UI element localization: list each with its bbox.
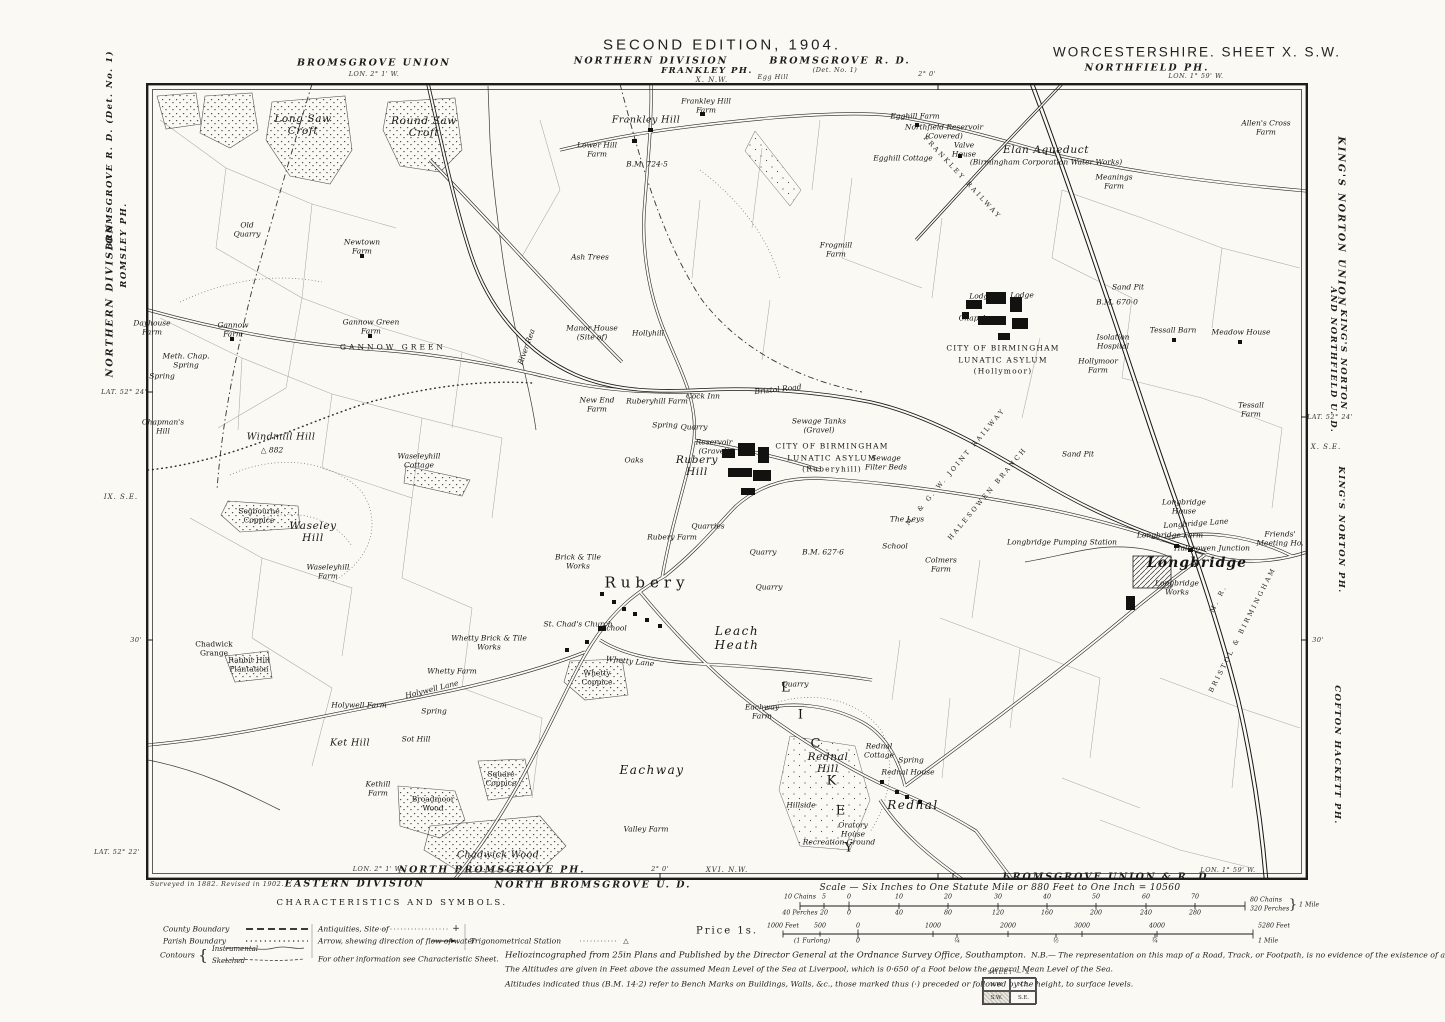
left-latitude: LAT. 52° 24': [101, 388, 147, 396]
top-left-longitude: LON. 2° 1' W.: [349, 70, 400, 78]
top-frankley-parish: FRANKLEY PH.: [661, 66, 753, 76]
sheet-title: WORCESTERSHIRE. SHEET X. S.W.: [1053, 45, 1341, 60]
sheet-quadrant-se: S.E.: [1010, 991, 1037, 1004]
right-tick-30: 30': [1312, 636, 1324, 644]
left-latitude-bottom: LAT. 52° 22': [94, 848, 140, 856]
top-egg-hill: Egg Hill: [757, 73, 788, 81]
bottom-eastern-division: EASTERN DIVISION: [285, 879, 425, 890]
adjoining-sheet-right: X. S.E.: [1311, 443, 1342, 451]
top-lon-tick: 2° 0': [918, 70, 936, 78]
top-bromsgrove-rd: BROMSGROVE R. D.: [769, 56, 910, 67]
top-right-longitude: LON. 1° 59' W.: [1168, 72, 1223, 80]
imprint-publisher: Heliozincographed from 25in Plans and Pu…: [505, 951, 1026, 961]
imprint-line-3: Altitudes indicated thus (B.M. 14·2) ref…: [505, 980, 1133, 989]
map-sheet: BROMSGROVE UNION LON. 2° 1' W. SECOND ED…: [0, 0, 1445, 1022]
top-left-union: BROMSGROVE UNION: [297, 58, 451, 69]
top-division: NORTHERN DIVISION: [574, 56, 729, 67]
left-tick-30: 30': [130, 636, 142, 644]
scale-mile-1: 1 Mile: [1299, 902, 1319, 909]
scale-end-chains: 80 Chains: [1250, 897, 1282, 904]
scale-bars: [780, 893, 1325, 950]
imprint-line-1: Heliozincographed from 25in Plans and Pu…: [505, 943, 1445, 962]
adjoining-sheet-left: IX. S.E.: [104, 493, 138, 501]
scale-caption: Scale — Six Inches to One Statute Mile o…: [819, 883, 1180, 893]
top-det-note: (Det. No. 1): [813, 66, 858, 74]
map-graphics: [146, 83, 1308, 880]
right-margin-union: KING'S NORTON UNION: [1336, 137, 1347, 308]
bottom-nb-ud: NORTH BROMSGROVE U. D.: [495, 880, 692, 891]
sheet-quadrant-nw: N.W.: [983, 978, 1010, 991]
legend-title: CHARACTERISTICS AND SYMBOLS.: [276, 898, 507, 908]
sheet-quadrant-sw: S.W.: [983, 991, 1010, 1004]
left-margin-bromsgrove: BROMSGROVE R. D. (Det. No. 1): [105, 50, 115, 250]
sheet-diagram: SHEET — X N.W. N.E. S.W. S.E.: [982, 970, 1036, 1005]
price-label: Price 1s.: [696, 926, 758, 937]
scale-end-feet: 5280 Feet: [1258, 923, 1290, 930]
imprint-nb: N.B.— The representation on this map of …: [1031, 951, 1445, 960]
scale-end-perches: 320 Perches: [1250, 906, 1289, 913]
scale-brace: }: [1289, 898, 1297, 913]
page-title: SECOND EDITION, 1904.: [603, 37, 841, 54]
map-area: [146, 83, 1308, 880]
survey-note: Surveyed in 1882. Revised in 1902.: [150, 880, 284, 888]
left-margin-romsley: ROMSLEY PH.: [119, 202, 129, 287]
right-margin-cofton: COFTON HACKETT PH.: [1332, 685, 1342, 825]
right-latitude: LAT. 52° 24': [1307, 413, 1353, 421]
right-margin-kings-norton: KING'S NORTON PH.: [1336, 466, 1346, 594]
right-margin-ud: KING'S NORTON AND NORTHFIELD U. D.: [1328, 287, 1348, 434]
sheet-quadrant-ne: N.E.: [1010, 978, 1037, 991]
sheet-diagram-header: SHEET — X: [982, 970, 1036, 976]
